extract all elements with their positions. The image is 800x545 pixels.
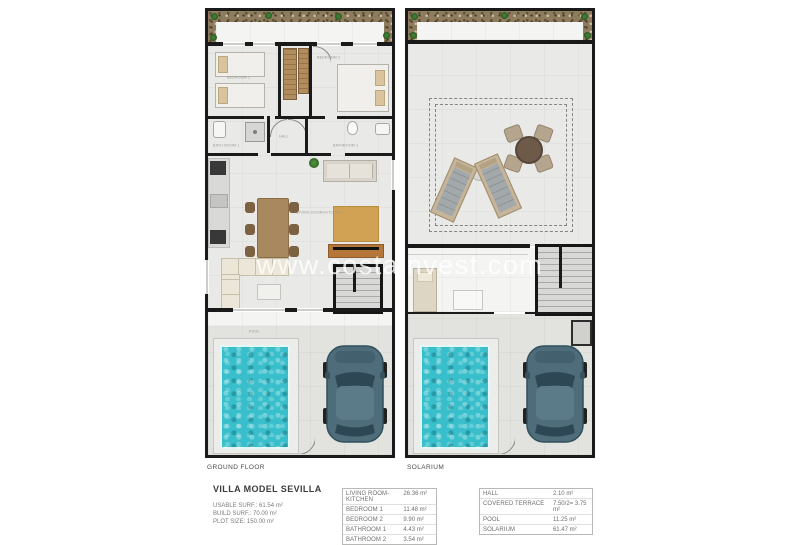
plant-icon (210, 34, 217, 41)
wall (408, 312, 494, 314)
fridge (210, 230, 226, 244)
ground-floor-label: GROUND FLOOR (207, 464, 265, 471)
sink (375, 123, 390, 135)
table-row: BATHROOM 1 4.43 m² (343, 525, 436, 535)
room-area: 3.54 m² (403, 537, 433, 543)
wall (309, 46, 312, 116)
plant-icon (309, 158, 319, 168)
wall (408, 244, 530, 248)
table-row: POOL 11.25 m² (480, 515, 592, 525)
glass-door (233, 308, 285, 312)
sink (213, 121, 226, 138)
room-label-bathroom1: BATH ROOM 1 (213, 144, 240, 148)
wall (408, 40, 592, 44)
stove (210, 161, 226, 175)
window (317, 42, 341, 46)
pool (420, 345, 490, 449)
window (353, 42, 377, 46)
wall (208, 116, 264, 119)
mat (453, 290, 483, 310)
ground-floor-plan: BEDROOM 1 BEDROOM 2 BATH ROOM 1 HALL BAT… (205, 8, 395, 458)
plant-icon (411, 13, 418, 20)
wardrobe (283, 48, 297, 100)
window (253, 42, 275, 46)
pool (220, 345, 290, 449)
plant-icon (335, 13, 342, 20)
room-area: 9.90 m² (403, 517, 433, 523)
chair (245, 224, 255, 235)
car-top-view (321, 344, 389, 444)
wardrobe (298, 48, 309, 94)
wall (337, 116, 392, 119)
single-bed (215, 52, 265, 77)
solarium-plan (405, 8, 595, 458)
chair (289, 224, 299, 235)
table-row: COVERED TERRACE 7.50/2= 3.75 m² (480, 499, 592, 515)
room-area: 11.48 m² (403, 507, 433, 513)
car-top-view (521, 344, 589, 444)
back-terrace (417, 22, 583, 40)
table-row: SOLARIUM 61.47 m² (480, 525, 592, 534)
room-area: 2.10 m² (553, 491, 589, 497)
wall (525, 312, 592, 314)
table-row: HALL 2.10 m² (480, 489, 592, 499)
solarium-areas-table: HALL 2.10 m² COVERED TERRACE 7.50/2= 3.7… (479, 488, 593, 535)
room-name: BEDROOM 2 (346, 517, 403, 523)
table-row: BEDROOM 2 9.90 m² (343, 515, 436, 525)
terrace-table (515, 136, 543, 164)
plant-icon (501, 12, 508, 19)
usable-surface: USABLE SURF.: 61.54 m² (213, 502, 333, 510)
room-area: 4.43 m² (403, 527, 433, 533)
plant-icon (584, 32, 591, 39)
room-area: 26.36 m² (403, 491, 433, 503)
villa-info: VILLA MODEL SEVILLA USABLE SURF.: 61.54 … (213, 484, 333, 526)
single-bed (215, 83, 265, 108)
room-name: SOLARIUM (483, 527, 553, 533)
room-name: COVERED TERRACE (483, 501, 553, 513)
wall (271, 153, 331, 156)
room-name: BATHROOM 1 (346, 527, 403, 533)
table-row: BATHROOM 2 3.54 m² (343, 535, 436, 544)
coffee-table (257, 284, 281, 300)
utility-box (571, 320, 592, 346)
wall (275, 116, 325, 119)
villa-title: VILLA MODEL SEVILLA (213, 484, 333, 494)
toilet (347, 121, 358, 135)
room-name: LIVING ROOM-KITCHEN (346, 491, 403, 503)
kitchen-sink (210, 194, 228, 208)
gate-arc (497, 436, 515, 454)
gravel-strip (408, 11, 592, 22)
door-arc (269, 119, 287, 137)
plant-icon (265, 12, 272, 19)
watermark: www.costainvest.com (0, 250, 800, 281)
sofa (323, 160, 377, 182)
wall (278, 46, 281, 116)
room-label-bedroom1: BEDROOM 1 (227, 76, 250, 80)
table-row: LIVING ROOM-KITCHEN 26.36 m² (343, 489, 436, 505)
wall (345, 153, 392, 156)
double-bed (337, 64, 389, 112)
room-label-living: LIVING ROOM-KITCHEN (297, 211, 341, 215)
shower (245, 122, 265, 142)
wall (208, 153, 258, 156)
room-label-pool: POOL (249, 330, 260, 334)
gate-arc (297, 436, 315, 454)
room-name: POOL (483, 517, 553, 523)
wall (267, 116, 270, 153)
room-area: 61.47 m² (553, 527, 589, 533)
room-name: HALL (483, 491, 553, 497)
solarium-label: SOLARIUM (407, 464, 444, 471)
plant-icon (211, 13, 218, 20)
back-terrace (216, 22, 384, 44)
door-arc (288, 119, 306, 137)
dining-table (257, 198, 289, 258)
plant-icon (581, 13, 588, 20)
build-surface: BUILD SURF.: 70.00 m² (213, 510, 333, 518)
wall (305, 116, 308, 153)
glass-door (297, 308, 323, 312)
room-name: BATHROOM 2 (346, 537, 403, 543)
gravel-strip (384, 11, 392, 44)
floorplan-sheet: BEDROOM 1 BEDROOM 2 BATH ROOM 1 HALL BAT… (0, 0, 800, 535)
gravel-strip (208, 11, 392, 22)
room-area: 11.25 m² (553, 517, 589, 523)
window (391, 160, 395, 190)
chair (245, 202, 255, 213)
window (223, 42, 245, 46)
plant-icon (410, 32, 417, 39)
plot-size: PLOT SIZE: 150.00 m² (213, 518, 333, 526)
plant-icon (383, 32, 390, 39)
table-row: BEDROOM 1 11.48 m² (343, 505, 436, 515)
door-arc (313, 46, 331, 64)
room-area: 7.50/2= 3.75 m² (553, 501, 589, 513)
room-name: BEDROOM 1 (346, 507, 403, 513)
ground-floor-areas-table: LIVING ROOM-KITCHEN 26.36 m² BEDROOM 1 1… (342, 488, 437, 545)
room-label-bathroom2: BATHROOM 1 (333, 144, 358, 148)
